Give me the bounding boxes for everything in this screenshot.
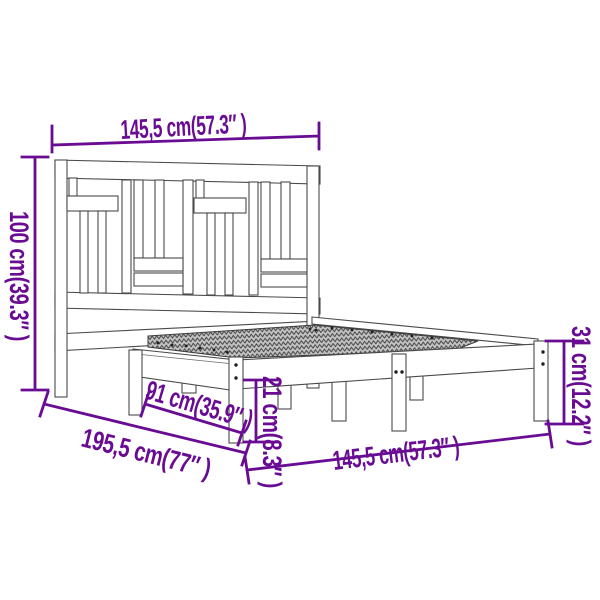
headboard-bottom-rail bbox=[55, 292, 320, 314]
dim-frame-width-label: 145,5 cm(57.3″ ) bbox=[331, 431, 461, 476]
headboard-slat bbox=[281, 182, 290, 259]
dimension-rail-height: 21 cm(8.3″ ) bbox=[244, 376, 287, 488]
dim-frame-length-label: 195,5 cm(77″ ) bbox=[79, 423, 214, 484]
headboard-board bbox=[134, 273, 183, 286]
dimension-headboard-width: 145,5 cm(57.3″ ) bbox=[52, 108, 319, 152]
bed-base bbox=[129, 317, 548, 443]
headboard-slat bbox=[261, 182, 270, 259]
headboard-board bbox=[67, 196, 118, 211]
headboard-slat bbox=[155, 180, 164, 258]
bed-leg bbox=[534, 341, 548, 421]
headboard-center-stile bbox=[183, 180, 193, 294]
diagram-page: 145,5 cm(57.3″ ) 100 cm(39.3″ ) 31 cm(12… bbox=[0, 0, 600, 600]
dim-frame-height-label: 31 cm(12.2″ ) bbox=[566, 326, 596, 446]
headboard-slat bbox=[207, 213, 215, 295]
headboard-slat bbox=[122, 180, 131, 293]
headboard-board bbox=[194, 198, 246, 213]
dim-headboard-height-label: 100 cm(39.3″ ) bbox=[4, 211, 34, 341]
dimension-headboard-height: 100 cm(39.3″ ) bbox=[4, 157, 48, 390]
headboard-left-post bbox=[55, 160, 67, 397]
headboard-slat bbox=[249, 182, 258, 295]
headboard-board bbox=[134, 258, 183, 271]
dim-rail-height-label: 21 cm(8.3″ ) bbox=[257, 376, 287, 488]
headboard-slat bbox=[69, 178, 77, 196]
headboard-board bbox=[261, 259, 307, 272]
headboard-slat bbox=[134, 180, 143, 258]
headboard-slat bbox=[80, 211, 88, 293]
bed-leg bbox=[332, 379, 346, 421]
bed-leg bbox=[392, 354, 406, 431]
headboard-slat bbox=[196, 180, 204, 198]
headboard-slat bbox=[98, 211, 106, 293]
headboard-board bbox=[261, 274, 307, 287]
headboard-slat-panel-left bbox=[67, 178, 183, 293]
bed-dimension-diagram: 145,5 cm(57.3″ ) 100 cm(39.3″ ) 31 cm(12… bbox=[0, 0, 600, 600]
bed-leg bbox=[129, 350, 142, 415]
dimension-frame-height: 31 cm(12.2″ ) bbox=[546, 326, 596, 446]
headboard-slat-panel-right bbox=[194, 180, 307, 295]
headboard-slat bbox=[225, 213, 233, 295]
